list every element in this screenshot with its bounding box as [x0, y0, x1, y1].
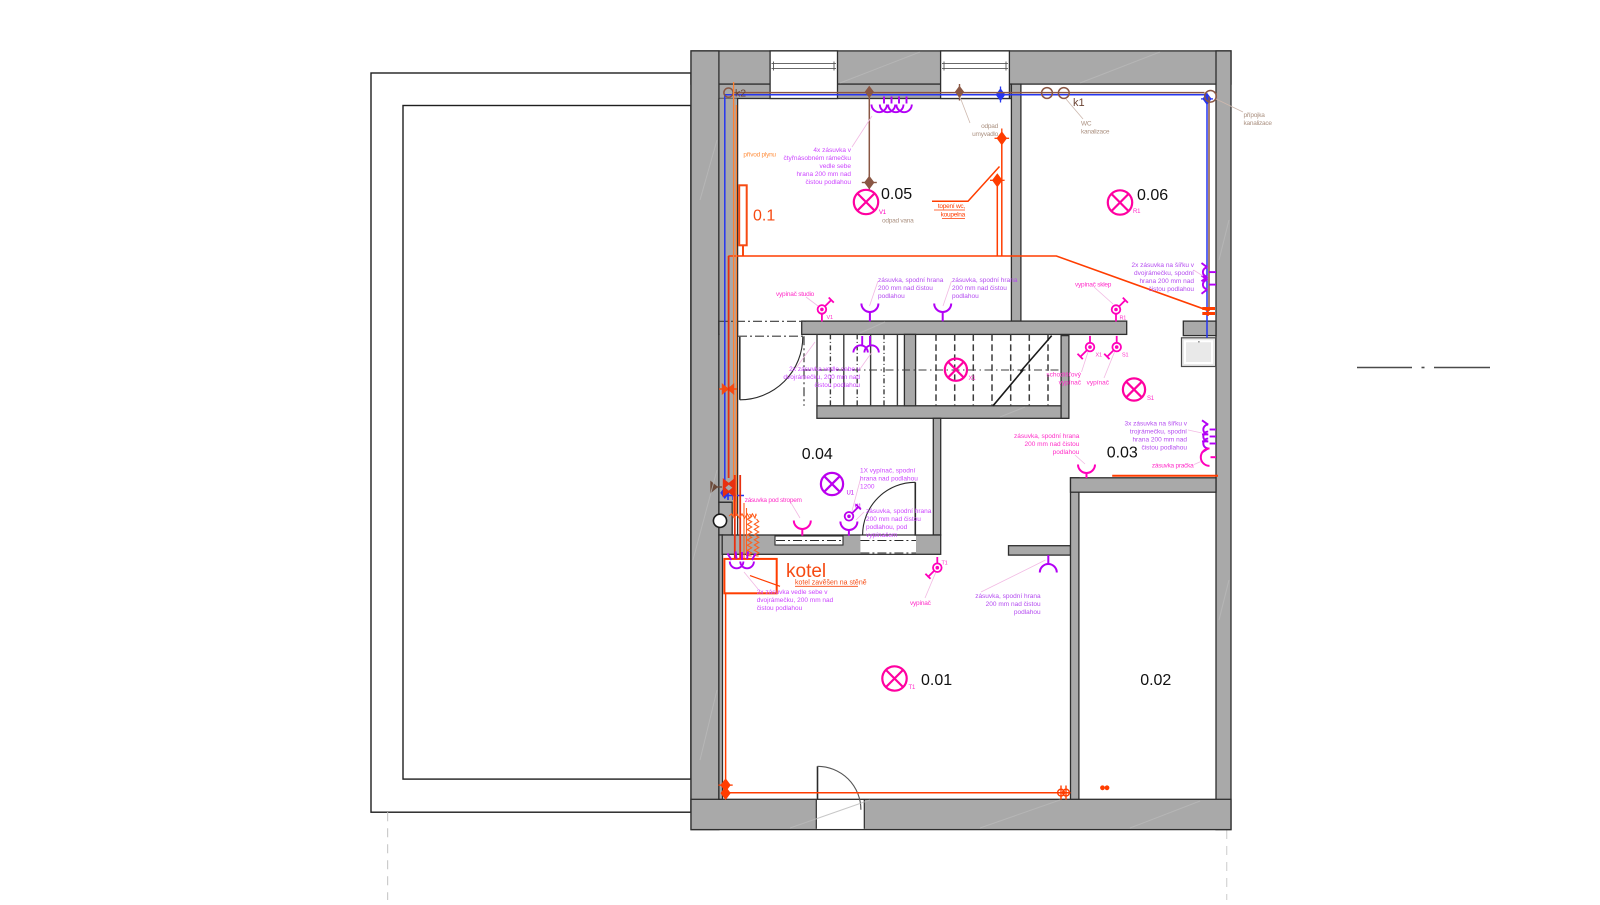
svg-text:hrana nad podlahou: hrana nad podlahou — [860, 476, 918, 483]
svg-text:U1: U1 — [855, 504, 862, 510]
svg-text:vypínač: vypínač — [1059, 380, 1082, 387]
svg-text:0.04: 0.04 — [802, 446, 833, 463]
svg-text:X1: X1 — [969, 376, 977, 382]
svg-text:koupelna: koupelna — [941, 212, 966, 219]
svg-text:S1: S1 — [1122, 353, 1128, 359]
svg-text:vypínač: vypínač — [1087, 380, 1110, 387]
svg-text:0.03: 0.03 — [1107, 445, 1138, 462]
svg-text:zásuvka pračka: zásuvka pračka — [1152, 463, 1194, 470]
svg-text:čistou podlahou: čistou podlahou — [1141, 445, 1187, 452]
svg-text:2x zásuvka na šířku v: 2x zásuvka na šířku v — [1132, 262, 1195, 269]
svg-text:podlahou: podlahou — [1053, 449, 1080, 456]
svg-text:3x zásuvka na šířku v: 3x zásuvka na šířku v — [1125, 421, 1188, 428]
svg-text:zásuvka pod stropem: zásuvka pod stropem — [745, 497, 802, 504]
svg-text:V1: V1 — [827, 315, 833, 321]
svg-text:kanalizace: kanalizace — [1244, 120, 1273, 127]
svg-text:zásuvka, spodní hrana: zásuvka, spodní hrana — [975, 593, 1041, 600]
svg-text:zásuvka, spodní hrana: zásuvka, spodní hrana — [866, 508, 932, 515]
svg-text:přípojka: přípojka — [1244, 112, 1266, 119]
svg-text:1200: 1200 — [860, 484, 875, 491]
svg-text:0.05: 0.05 — [881, 186, 912, 203]
svg-text:podlahou: podlahou — [1014, 609, 1041, 616]
svg-text:200 mm nad čistou: 200 mm nad čistou — [878, 285, 933, 292]
svg-text:R1: R1 — [1120, 316, 1127, 322]
svg-text:X1: X1 — [1096, 353, 1102, 359]
svg-text:dvojrámečku, spodní: dvojrámečku, spodní — [1134, 270, 1194, 277]
svg-text:R1: R1 — [1133, 209, 1141, 215]
svg-text:0.01: 0.01 — [921, 672, 952, 689]
svg-text:dvojrámečku, 200 mm nad: dvojrámečku, 200 mm nad — [783, 374, 860, 381]
svg-text:200 mm nad čistou: 200 mm nad čistou — [1024, 441, 1079, 448]
svg-text:schodišťový: schodišťový — [1046, 372, 1081, 379]
svg-text:odpad vana: odpad vana — [882, 218, 914, 225]
svg-text:0.06: 0.06 — [1137, 187, 1168, 204]
svg-text:S1: S1 — [1147, 396, 1155, 402]
svg-text:WC: WC — [1081, 121, 1092, 128]
svg-text:k1: k1 — [1073, 97, 1085, 109]
svg-text:podlahou: podlahou — [878, 293, 905, 300]
svg-text:vypínač: vypínač — [910, 600, 932, 607]
svg-text:podlahou: podlahou — [952, 293, 979, 300]
svg-text:zásuvka, spodní hrana: zásuvka, spodní hrana — [1014, 433, 1080, 440]
svg-text:T1: T1 — [942, 561, 948, 567]
svg-text:hrana 200 mm nad: hrana 200 mm nad — [1139, 278, 1194, 285]
svg-text:kanalizace: kanalizace — [1081, 129, 1110, 136]
svg-text:hrana 200 mm nad: hrana 200 mm nad — [796, 171, 851, 178]
svg-text:200 mm nad čistou: 200 mm nad čistou — [866, 516, 921, 523]
svg-text:0.1: 0.1 — [753, 208, 775, 225]
svg-text:1X vypínač, spodní: 1X vypínač, spodní — [860, 468, 915, 475]
svg-text:čistou podlahou: čistou podlahou — [1148, 286, 1194, 293]
svg-text:umyvadlo: umyvadlo — [972, 131, 998, 138]
svg-text:podlahou, pod: podlahou, pod — [866, 524, 908, 531]
svg-text:odpad: odpad — [981, 123, 998, 130]
svg-text:V1: V1 — [879, 210, 887, 216]
svg-text:kotel zavěšen na stěně: kotel zavěšen na stěně — [795, 580, 867, 587]
svg-text:zásuvka, spodní hrana: zásuvka, spodní hrana — [878, 277, 944, 284]
svg-text:200 mm nad čistou: 200 mm nad čistou — [986, 601, 1041, 608]
svg-text:200 mm nad čistou: 200 mm nad čistou — [952, 285, 1007, 292]
svg-text:topení wc,: topení wc, — [938, 203, 966, 210]
svg-text:U1: U1 — [847, 491, 855, 497]
svg-text:přívod plynu: přívod plynu — [743, 152, 776, 159]
svg-text:2x zásuvka vedle sebe v: 2x zásuvka vedle sebe v — [757, 589, 829, 596]
svg-text:2x zásuvka vedle sebe v: 2x zásuvka vedle sebe v — [789, 366, 861, 373]
svg-text:hrana 200 mm nad: hrana 200 mm nad — [1132, 437, 1187, 444]
svg-text:trojrámečku, spodní: trojrámečku, spodní — [1130, 429, 1187, 436]
svg-text:vedle sebe: vedle sebe — [820, 163, 852, 170]
svg-text:T1: T1 — [909, 685, 916, 691]
svg-text:vypínač studio: vypínač studio — [776, 291, 815, 298]
svg-text:čistou podlahou: čistou podlahou — [805, 179, 851, 186]
svg-text:4x zásuvka v: 4x zásuvka v — [813, 147, 851, 154]
svg-text:k2: k2 — [735, 88, 746, 100]
svg-text:0.02: 0.02 — [1140, 672, 1171, 689]
svg-text:vypínačem: vypínačem — [866, 532, 897, 539]
svg-text:dvojrámečku, 200 mm nad: dvojrámečku, 200 mm nad — [757, 597, 834, 604]
svg-text:čistou podlahou: čistou podlahou — [757, 605, 803, 612]
svg-text:vypínač sklep: vypínač sklep — [1075, 282, 1112, 289]
svg-text:čtyřnásobném rámečku: čtyřnásobném rámečku — [783, 155, 851, 162]
svg-text:zásuvka, spodní hrana: zásuvka, spodní hrana — [952, 277, 1018, 284]
svg-text:čistou podlahou: čistou podlahou — [814, 382, 860, 389]
